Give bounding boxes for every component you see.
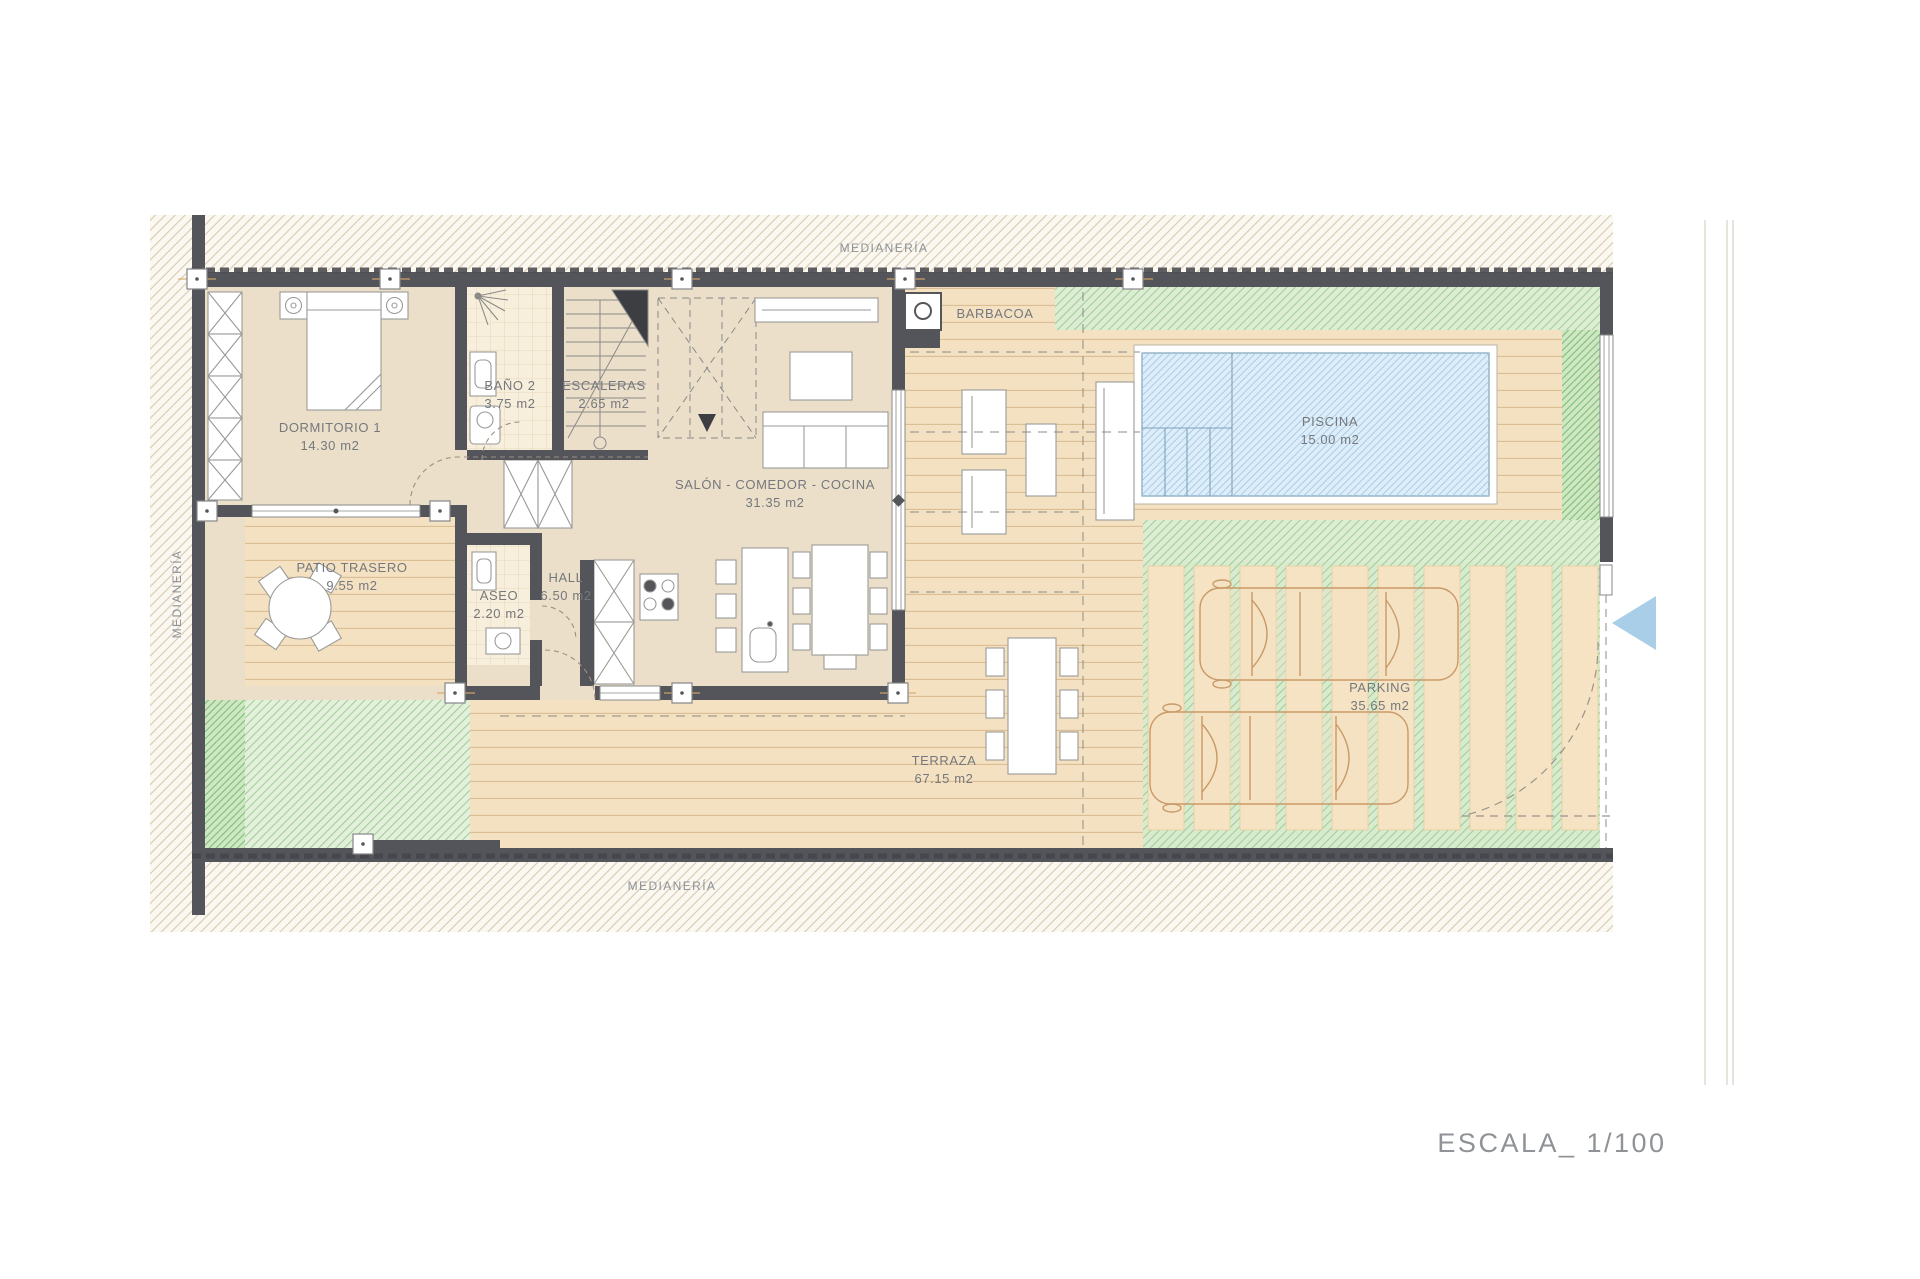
svg-text:2.20 m2: 2.20 m2 (473, 606, 524, 621)
svg-text:HALL: HALL (549, 570, 584, 585)
svg-text:2.65 m2: 2.65 m2 (578, 396, 629, 411)
hall-closets (504, 460, 572, 528)
floor-plan-svg: MEDIANERÍA MEDIANERÍA MEDIANERÍA DORMITO… (0, 0, 1920, 1279)
svg-text:3.75 m2: 3.75 m2 (484, 396, 535, 411)
svg-text:TERRAZA: TERRAZA (912, 753, 977, 768)
entry-arrow-icon (1612, 596, 1656, 650)
svg-text:PATIO TRASERO: PATIO TRASERO (296, 560, 407, 575)
svg-text:15.00 m2: 15.00 m2 (1300, 432, 1359, 447)
svg-text:14.30 m2: 14.30 m2 (300, 438, 359, 453)
svg-text:PISCINA: PISCINA (1302, 414, 1358, 429)
svg-text:SALÓN - COMEDOR - COCINA: SALÓN - COMEDOR - COCINA (675, 477, 875, 492)
svg-text:ASEO: ASEO (480, 588, 519, 603)
boundary-label-bottom: MEDIANERÍA (628, 878, 717, 893)
svg-text:35.65 m2: 35.65 m2 (1350, 698, 1409, 713)
feature-label-barbacoa: BARBACOA (956, 306, 1033, 321)
svg-text:9.55 m2: 9.55 m2 (326, 578, 377, 593)
stove-icon (640, 574, 678, 620)
floor-plan-page: MEDIANERÍA MEDIANERÍA MEDIANERÍA DORMITO… (0, 0, 1920, 1279)
svg-text:PARKING: PARKING (1349, 680, 1411, 695)
scale-label: ESCALA_ 1/100 (1437, 1128, 1666, 1158)
svg-text:BAÑO 2: BAÑO 2 (484, 378, 535, 393)
barbacoa (905, 293, 941, 330)
car-outline (1150, 704, 1408, 812)
car-outline (1200, 580, 1458, 688)
wardrobe (208, 292, 242, 500)
svg-text:6.50 m2: 6.50 m2 (540, 588, 591, 603)
svg-text:ESCALERAS: ESCALERAS (562, 378, 645, 393)
svg-text:31.35 m2: 31.35 m2 (745, 495, 804, 510)
boundary-label-top: MEDIANERÍA (840, 240, 929, 255)
svg-text:67.15 m2: 67.15 m2 (914, 771, 973, 786)
svg-text:DORMITORIO 1: DORMITORIO 1 (279, 420, 381, 435)
boundary-label-left: MEDIANERÍA (169, 550, 184, 639)
page-fold-lines (1705, 220, 1733, 1085)
